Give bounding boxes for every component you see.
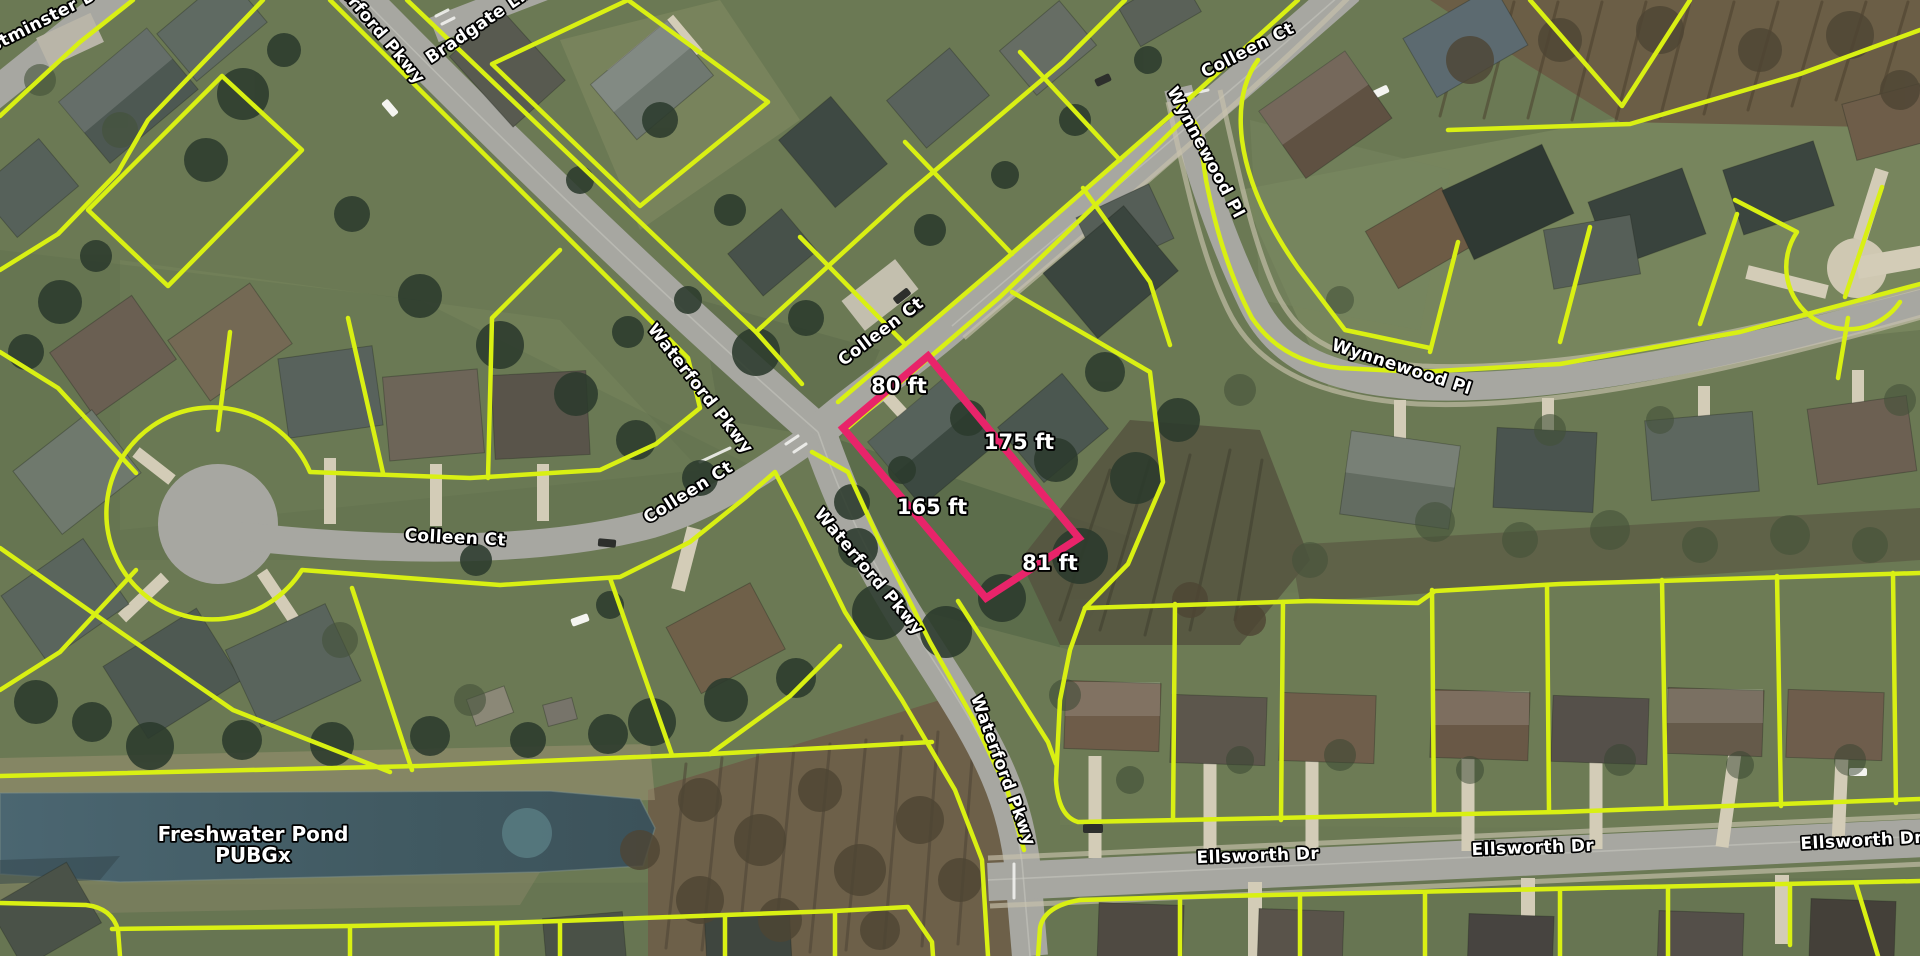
map-canvas[interactable]: Westminster DrWaterford PkwyBradgate LnC… bbox=[0, 0, 1920, 956]
parcel-dimension-label: 175 ft bbox=[984, 430, 1054, 454]
street-label: Ellsworth Dr bbox=[1196, 844, 1319, 868]
map-viewport[interactable]: Westminster DrWaterford PkwyBradgate LnC… bbox=[0, 0, 1920, 956]
road-colleen-cul-de-sac bbox=[158, 464, 278, 584]
pond-label: PUBGx bbox=[215, 843, 291, 867]
parcel-dimension-label: 165 ft bbox=[897, 495, 967, 519]
street-label: Ellsworth Dr bbox=[1471, 836, 1594, 860]
parcel-dimension-label: 80 ft bbox=[871, 374, 927, 398]
terrain-layer bbox=[0, 0, 1920, 956]
parcel-dimension-label: 81 ft bbox=[1022, 551, 1078, 575]
